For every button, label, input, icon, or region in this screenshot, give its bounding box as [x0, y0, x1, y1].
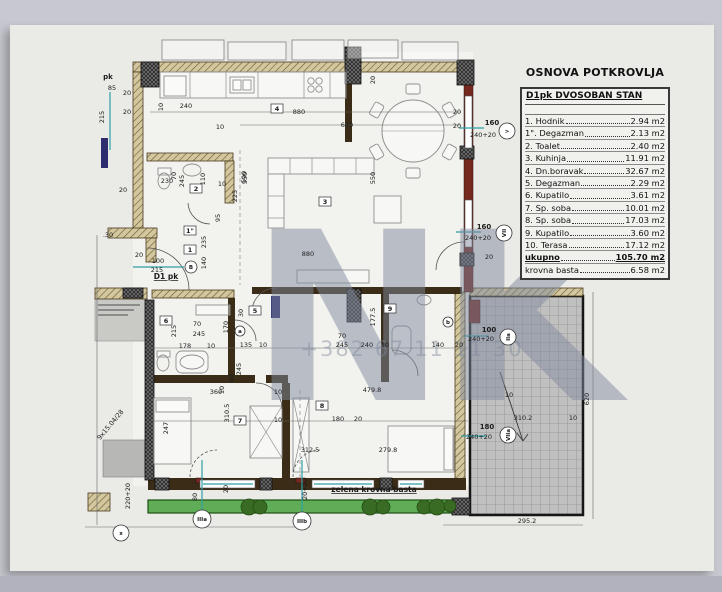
dot-leader [584, 173, 624, 174]
legend-room-name: Kupatilo [536, 190, 570, 200]
dimension-label: 310.2 [514, 414, 533, 422]
dimension-label: 20 [369, 76, 377, 84]
legend-room-area: 2.13 m2 [631, 128, 665, 138]
dimension-label: pk [103, 73, 113, 81]
legend-room-area: 2.40 m2 [631, 141, 665, 151]
bush [444, 500, 456, 512]
dot-leader [570, 235, 629, 236]
dimension-label: 880 [302, 250, 314, 258]
furniture [228, 42, 286, 60]
dimension-label: 240 [180, 102, 192, 110]
legend-row-6: 5. Degazman2.29 m2 [525, 177, 665, 189]
furniture [164, 76, 186, 96]
dimension-label: 20 [135, 251, 143, 259]
legend-room-area: 17.12 m2 [625, 240, 665, 250]
legend-table: D1pk DVOSOBAN STAN 1. Hodnik2.94 m21". D… [520, 87, 670, 280]
dimension-label: 312.5 [301, 446, 320, 454]
legend-room-number: 9. [525, 228, 536, 238]
legend-room-number: 5. [525, 178, 536, 188]
dimension-label: 180 [480, 423, 495, 431]
dimension-label: 235 [200, 236, 208, 248]
legend-row-1: 1. Hodnik2.94 m2 [525, 115, 665, 127]
dot-leader [572, 210, 624, 211]
legend-row-4: 3. Kuhinja11.91 m2 [525, 152, 665, 164]
wall-pier [260, 478, 272, 490]
legend-room-name: Degazman [539, 128, 584, 138]
dimension-label: 100 [152, 257, 164, 265]
dimension-label: 240 [361, 341, 373, 349]
dimension-label: 140 [432, 341, 444, 349]
legend-room-number: 7. [525, 203, 536, 213]
legend-room-name: Degazman [536, 178, 581, 188]
legend-room-name: Toalet [536, 141, 560, 151]
legend-room-number: 3. [525, 153, 536, 163]
legend-spacer [525, 105, 665, 115]
dot-leader [580, 272, 630, 273]
wall-masonry [147, 153, 233, 161]
dimension-label: 20 [119, 186, 127, 194]
room-number: 4 [275, 105, 280, 113]
dimension-label: 620 [583, 393, 591, 405]
legend-room-name: Dn.boravak [536, 166, 584, 176]
legend-title: OSNOVA POTKROVLJA [520, 66, 670, 79]
dot-leader [581, 185, 629, 186]
dining-chair [406, 168, 420, 178]
furniture [176, 351, 208, 373]
dimension-label: 220+20 [124, 483, 132, 509]
legend-room-name: Sp. soba [536, 215, 572, 225]
legend-room-area: 6.58 m2 [631, 265, 665, 275]
legend-row-8: 7. Sp. soba10.01 m2 [525, 202, 665, 214]
room-number: 1 [188, 246, 193, 254]
legend-room-area: 3.61 m2 [631, 190, 665, 200]
dimension-label: 10 [381, 341, 389, 349]
dimension-label: 279.8 [379, 446, 398, 454]
dimension-label: 360 [210, 388, 222, 396]
fixture-marker [101, 138, 108, 168]
legend-room-name: Kuhinja [536, 153, 567, 163]
wall-masonry [88, 493, 110, 511]
room-number: 1" [186, 227, 194, 235]
room-number: 6 [164, 317, 169, 325]
dimension-label: 215 [170, 325, 178, 337]
dimension-label: 10 [207, 342, 215, 350]
dot-leader [585, 136, 630, 137]
dimension-label: 240+20 [465, 234, 491, 242]
dimension-label: 20 [123, 89, 131, 97]
legend-room-name: krovna basta [525, 265, 579, 275]
screen: NK+382 67 11 11 3011"23456789pk852152020… [0, 0, 722, 592]
legend-room-area: 2.29 m2 [631, 178, 665, 188]
room-number: 7 [238, 417, 243, 425]
dimension-label: 70 [193, 320, 201, 328]
dot-leader [566, 123, 630, 124]
dimension-label: 70 [170, 172, 178, 180]
dot-leader [561, 148, 629, 149]
bush [253, 500, 267, 514]
dimension-label: 30 [237, 309, 245, 317]
legend-room-number: 1. [525, 116, 536, 126]
dimension-label: 180 [332, 415, 344, 423]
room-number: 3 [323, 198, 328, 206]
dimension-label: 140 [200, 257, 208, 269]
legend-room-area: 11.91 m2 [625, 153, 665, 163]
ref-bubble-label: VIIa [506, 429, 512, 441]
legend-room-number: 1". [525, 128, 539, 138]
ref-bubble-label: VII [502, 229, 508, 237]
wall-masonry [133, 72, 143, 230]
wall-pier [155, 478, 169, 490]
dimension-label: 310.5 [223, 404, 231, 423]
legend-room-area: 105.70 m2 [616, 252, 665, 262]
wall-masonry [152, 290, 234, 298]
dimension-label: 479.8 [363, 386, 382, 394]
ref-bubble-label: B [189, 265, 193, 271]
dimension-label: 177.5 [369, 308, 377, 327]
dimension-label: 20 [123, 108, 131, 116]
ref-bubble-label: IIa [506, 333, 512, 341]
legend-row-5: 4. Dn.boravak32.67 m2 [525, 165, 665, 177]
legend-room-area: 3.60 m2 [631, 228, 665, 238]
dimension-label: 590 [240, 171, 248, 183]
furniture [243, 80, 251, 90]
room-number: 5 [253, 307, 258, 315]
dimension-label: 70 [338, 332, 346, 340]
annotation: D1 pk [154, 272, 179, 281]
legend-row-10: 9. Kupatilo3.60 m2 [525, 227, 665, 239]
dimension-label: 10 [505, 391, 513, 399]
legend-room-name: ukupno [525, 252, 560, 262]
dimension-label: 10 [274, 416, 282, 424]
legend-header: D1pk DVOSOBAN STAN [525, 90, 665, 105]
wall-pier [145, 300, 154, 480]
furniture [292, 40, 344, 60]
dimension-label: 20+20 [301, 478, 309, 500]
legend-row-12: ukupno105.70 m2 [525, 251, 665, 263]
dimension-label: 10 [216, 123, 224, 131]
dimension-label: 245 [235, 363, 243, 375]
dot-leader [570, 198, 629, 199]
wall-pier [141, 62, 159, 87]
legend-room-number: 6. [525, 190, 536, 200]
ref-bubble-label: > [505, 129, 510, 135]
furniture [162, 40, 224, 60]
dimension-label: 240+20 [470, 131, 496, 139]
legend-room-name: Terasa [541, 240, 568, 250]
furniture [268, 158, 374, 174]
bush [376, 500, 390, 514]
room-number: 8 [320, 402, 325, 410]
dot-leader [572, 223, 624, 224]
room-number: 9 [388, 305, 393, 313]
legend-row-11: 10. Terasa17.12 m2 [525, 239, 665, 251]
wall-pier [457, 60, 474, 85]
ref-bubble-label: a [238, 329, 242, 335]
furniture [157, 351, 170, 357]
dimension-label: 100 [482, 326, 497, 334]
dimension-label: 10 [218, 180, 226, 188]
ref-bubble-label: x [119, 531, 123, 537]
wall-masonry [108, 228, 157, 238]
dimension-label: 110 [199, 173, 207, 185]
bottom-bar [0, 576, 722, 592]
dot-leader [561, 260, 615, 261]
dimension-label: 880 [293, 108, 305, 116]
ref-bubble-label: b [446, 320, 450, 326]
legend-room-number: 8. [525, 215, 536, 225]
dimension-label: 640 [341, 121, 353, 129]
ref-bubble-label: IIIb [297, 519, 307, 525]
dimension-label: 160 [477, 223, 492, 231]
dimension-label: 20 [222, 485, 230, 493]
stair-block [103, 440, 145, 477]
dimension-label: 10 [259, 341, 267, 349]
legend-room-area: 2.94 m2 [631, 116, 665, 126]
wall-masonry [133, 62, 347, 72]
furniture [156, 400, 189, 412]
legend-room-name: Sp. soba [536, 203, 572, 213]
furniture [233, 80, 241, 90]
ref-bubble-label: IIIa [197, 517, 207, 523]
legend-rows: 1. Hodnik2.94 m21". Degazman2.13 m22. To… [525, 115, 665, 275]
legend-room-area: 10.01 m2 [625, 203, 665, 213]
dimension-label: 178 [179, 342, 191, 350]
dimension-label: 245 [193, 330, 205, 338]
dining-chair [406, 84, 420, 94]
dimension-label: 245 [336, 341, 348, 349]
legend-room-name: Kupatilo [536, 228, 570, 238]
legend-row-13: krovna basta6.58 m2 [525, 264, 665, 275]
legend-room-number: 4. [525, 166, 536, 176]
dimension-label: 170 [222, 321, 230, 333]
dimension-label: .30 [103, 231, 113, 239]
annotation: zelena krovna basta [331, 485, 416, 494]
dimension-label: 160 [485, 119, 500, 127]
room-number: 2 [194, 185, 199, 193]
dimension-label: 135 [240, 341, 252, 349]
dimension-label: 245 [178, 175, 186, 187]
legend-row-7: 6. Kupatilo3.61 m2 [525, 189, 665, 201]
dimension-label: 9x15.04/28 [95, 408, 125, 442]
furniture [348, 40, 398, 58]
dimension-label: 550 [369, 172, 377, 184]
wall-pier [123, 288, 143, 298]
dimension-label: 20 [354, 415, 362, 423]
dimension-label: 20 [455, 341, 463, 349]
dimension-label: 20 [453, 122, 461, 130]
dimension-label: 215 [98, 111, 106, 123]
legend-room-area: 32.67 m2 [625, 166, 665, 176]
dimension-label: 240+20 [468, 335, 494, 343]
dimension-label: 225 [231, 190, 239, 202]
dimension-label: 10 [274, 388, 282, 396]
furniture [402, 42, 458, 60]
legend-panel: OSNOVA POTKROVLJA D1pk DVOSOBAN STAN 1. … [520, 66, 670, 280]
legend-row-9: 8. Sp. soba17.03 m2 [525, 214, 665, 226]
legend-room-name: Hodnik [536, 116, 565, 126]
window [465, 96, 472, 148]
dimension-label: 80 [191, 493, 199, 501]
legend-room-area: 17.03 m2 [625, 215, 665, 225]
dot-leader [569, 247, 625, 248]
dimension-label: 240+20 [466, 433, 492, 441]
legend-row-2: 1". Degazman2.13 m2 [525, 127, 665, 139]
dimension-label: 85 [108, 84, 116, 92]
dimension-label: 10 [569, 414, 577, 422]
dot-leader [567, 161, 624, 162]
legend-room-number: 2. [525, 141, 536, 151]
dimension-label: 95 [214, 214, 222, 222]
dimension-label: 247 [162, 422, 170, 434]
legend-room-number: 10. [525, 240, 541, 250]
dimension-label: 20 [485, 253, 493, 261]
wall-masonry [355, 62, 461, 72]
dimension-label: 20 [453, 108, 461, 116]
dimension-label: 295.2 [518, 517, 537, 525]
dimension-label: 10 [157, 103, 165, 111]
furniture [196, 305, 230, 315]
legend-row-3: 2. Toalet2.40 m2 [525, 140, 665, 152]
bush [429, 499, 445, 515]
